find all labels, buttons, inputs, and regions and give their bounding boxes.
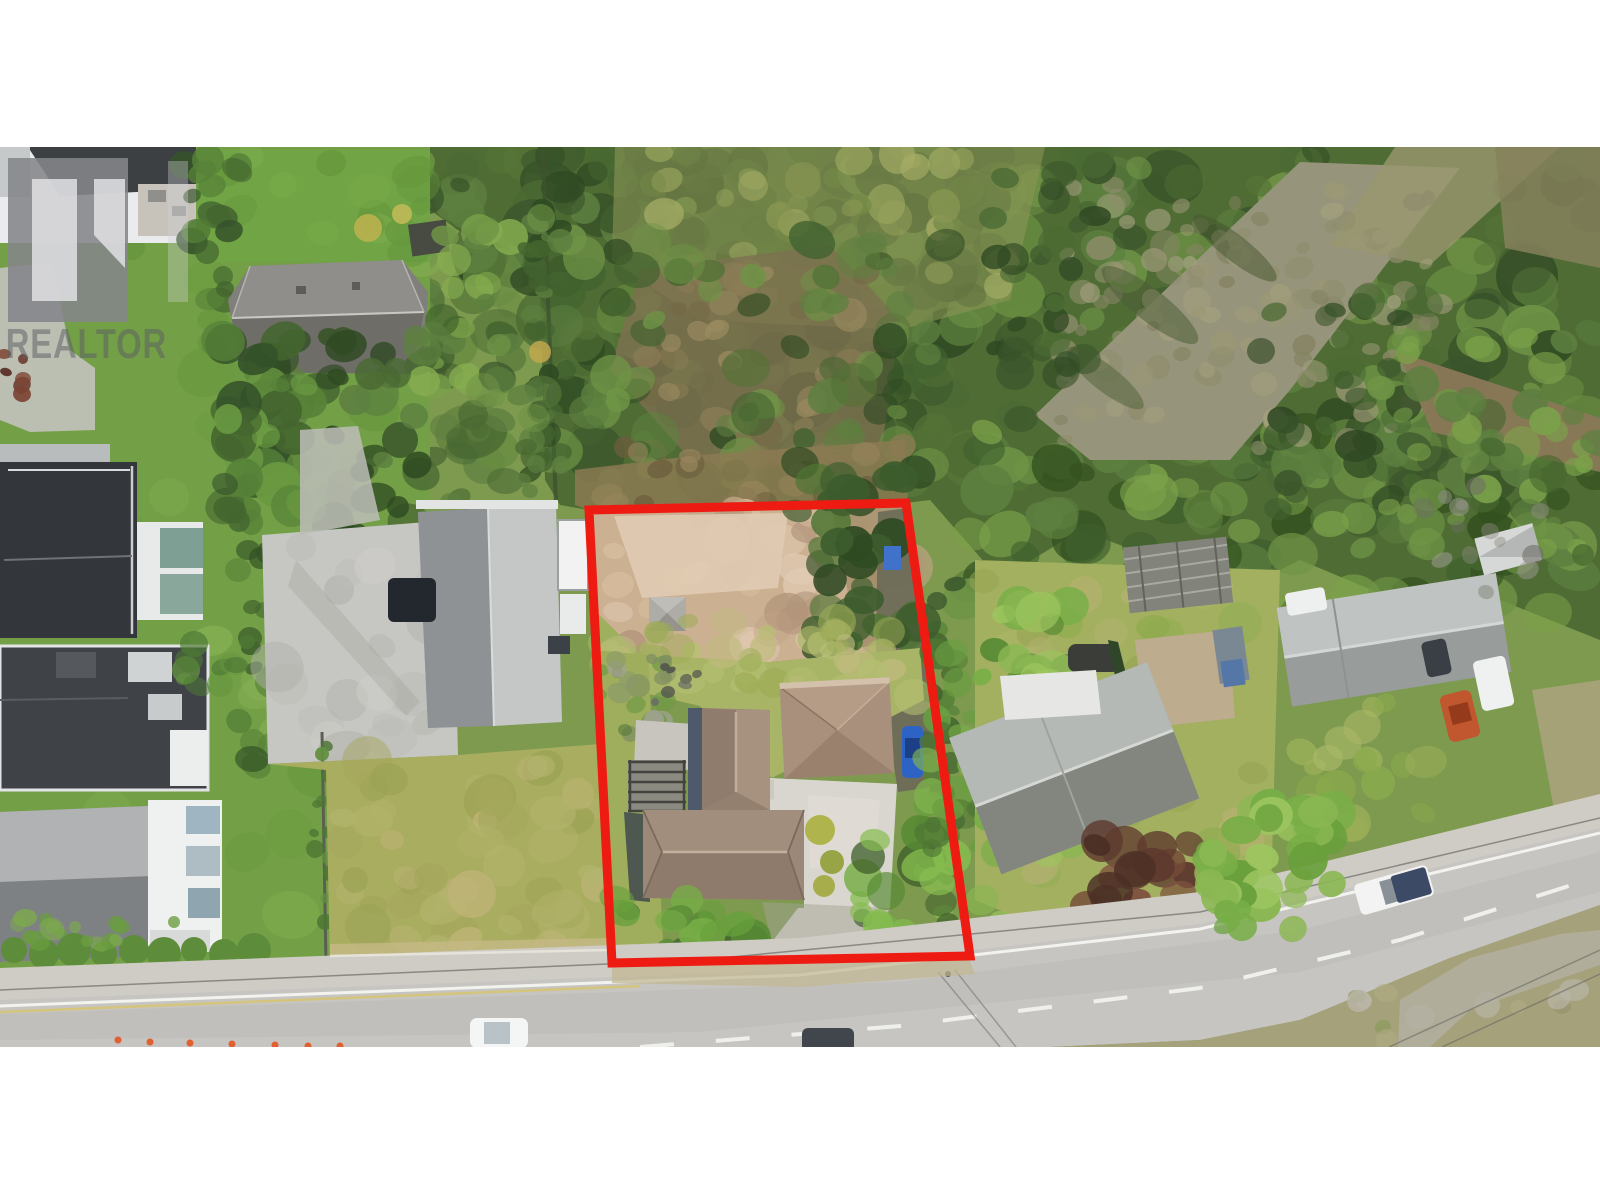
- svg-text:REALTOR: REALTOR: [6, 320, 167, 367]
